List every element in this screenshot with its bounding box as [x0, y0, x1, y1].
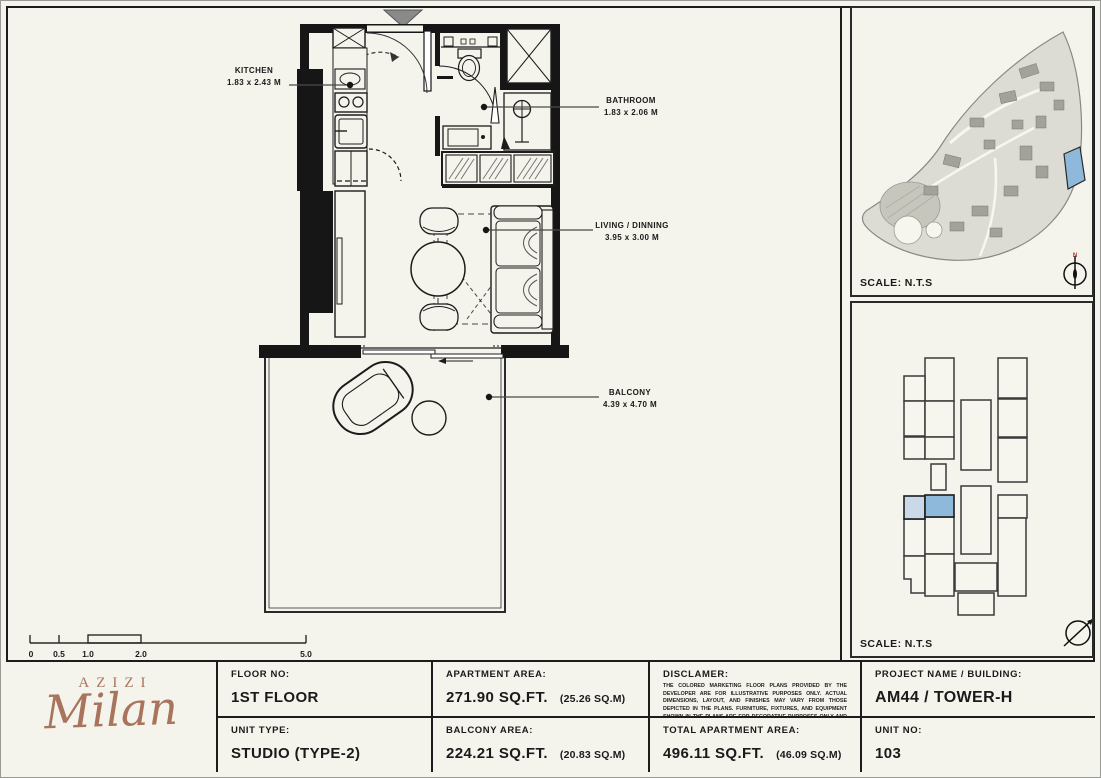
kitchen-fixtures: [333, 28, 401, 186]
chair-top: [420, 208, 458, 234]
project-name-value: AM44 / TOWER-H: [875, 689, 1082, 707]
apartment-area-value: 271.90 SQ.FT.: [446, 689, 548, 706]
balcony-area-metric: (20.83 SQ.M): [560, 749, 625, 761]
scale-tick-0: 0: [29, 649, 34, 659]
unit-no-label: UNIT NO:: [875, 725, 1082, 736]
wardrobe: [442, 152, 554, 185]
balcony-furniture: [323, 352, 423, 444]
dining-set: [411, 208, 498, 331]
floor-plan-drawing: 0 0.5 1.0 2.0 5.0: [1, 1, 841, 661]
key-scale-label: SCALE: N.T.S: [860, 638, 932, 650]
project-name-label: PROJECT NAME / BUILDING:: [875, 669, 1082, 680]
scale-bar: 0 0.5 1.0 2.0 5.0: [29, 635, 313, 659]
total-area-metric: (46.09 SQ.M): [776, 749, 841, 761]
compass-icon-2: [1064, 616, 1092, 646]
brand-logo-milan: Milan: [43, 681, 178, 740]
apartment-area-metric: (25.26 SQ.M): [560, 693, 625, 705]
living-dims: 3.95 x 3.00 M: [605, 233, 659, 242]
disclaimer-cell: DISCLAMER: THE COLORED MARKETING FLOOR P…: [650, 662, 860, 716]
title-block-table: AZIZI Milan FLOOR NO: 1ST FLOOR APARTMEN…: [6, 660, 1095, 772]
balcony-area-label: BALCONY AREA:: [446, 725, 635, 736]
scale-tick-05: 0.5: [53, 649, 65, 659]
dining-table-icon: [411, 242, 465, 296]
key-highlight-light: [904, 496, 925, 519]
site-highlight-parcel: [1064, 147, 1085, 189]
unit-type-value: STUDIO (TYPE-2): [231, 745, 418, 762]
living-label: LIVING / DINNING 3.95 x 3.00 M: [593, 220, 671, 245]
balcony-area-value: 224.21 SQ.FT.: [446, 745, 548, 762]
bathroom-dims: 1.83 x 2.06 M: [604, 108, 658, 117]
key-highlight-dark: [925, 495, 954, 517]
site-scale-label: SCALE: N.T.S: [860, 277, 932, 289]
kitchen-name: KITCHEN: [235, 66, 273, 75]
site-map-drawing: N: [852, 8, 1092, 295]
key-plan-panel: SCALE: N.T.S: [850, 301, 1094, 658]
floor-no-cell: FLOOR NO: 1ST FLOOR: [218, 662, 431, 716]
unit-type-cell: UNIT TYPE: STUDIO (TYPE-2): [218, 718, 431, 772]
scale-tick-10: 1.0: [82, 649, 94, 659]
balcony-label: BALCONY 4.39 x 4.70 M: [599, 387, 661, 412]
balcony-area-cell: BALCONY AREA: 224.21 SQ.FT.(20.83 SQ.M): [433, 718, 648, 772]
project-name-cell: PROJECT NAME / BUILDING: AM44 / TOWER-H: [862, 662, 1095, 716]
site-map-panel: N SCALE: N.T.S: [850, 6, 1094, 297]
total-area-cell: TOTAL APARTMENT AREA: 496.11 SQ.FT.(46.0…: [650, 718, 860, 772]
compass-icon: N: [1064, 253, 1086, 289]
disclaimer-label: DISCLAMER:: [663, 669, 847, 680]
kitchen-label: KITCHEN 1.83 x 2.43 M: [219, 65, 289, 90]
key-plan-drawing: [852, 303, 1092, 656]
shaft: [507, 29, 551, 83]
unit-type-label: UNIT TYPE:: [231, 725, 418, 736]
apartment-area-cell: APARTMENT AREA: 271.90 SQ.FT.(25.26 SQ.M…: [433, 662, 648, 716]
bathroom-name: BATHROOM: [606, 96, 656, 105]
scale-tick-50: 5.0: [300, 649, 312, 659]
bathroom-label: BATHROOM 1.83 x 2.06 M: [599, 95, 663, 120]
sofa: [491, 206, 553, 333]
balcony-table-icon: [412, 401, 446, 435]
living-name: LIVING / DINNING: [595, 221, 669, 230]
floor-plan-sheet: 0 0.5 1.0 2.0 5.0 KITCHEN 1.83 x 2.43 M …: [0, 0, 1101, 778]
balcony-name: BALCONY: [609, 388, 651, 397]
total-area-label: TOTAL APARTMENT AREA:: [663, 725, 847, 736]
chair-bottom: [420, 304, 458, 330]
apartment-area-label: APARTMENT AREA:: [446, 669, 635, 680]
unit-no-value: 103: [875, 745, 1082, 762]
shower: [501, 93, 551, 150]
balcony-dims: 4.39 x 4.70 M: [603, 400, 657, 409]
vertical-divider: [840, 7, 842, 660]
compass-n: N: [1073, 253, 1077, 259]
unit-no-cell: UNIT NO: 103: [862, 718, 1095, 772]
disclaimer-text: THE COLORED MARKETING FLOOR PLANS PROVID…: [663, 683, 847, 716]
logo-cell: AZIZI Milan: [6, 662, 216, 772]
total-area-value: 496.11 SQ.FT.: [663, 745, 764, 762]
floor-no-value: 1ST FLOOR: [231, 689, 418, 706]
dresser: [443, 126, 491, 149]
kitchen-dims: 1.83 x 2.43 M: [227, 78, 281, 87]
scale-tick-20: 2.0: [135, 649, 147, 659]
floor-no-label: FLOOR NO:: [231, 669, 418, 680]
bathroom-fixtures: [439, 37, 501, 123]
